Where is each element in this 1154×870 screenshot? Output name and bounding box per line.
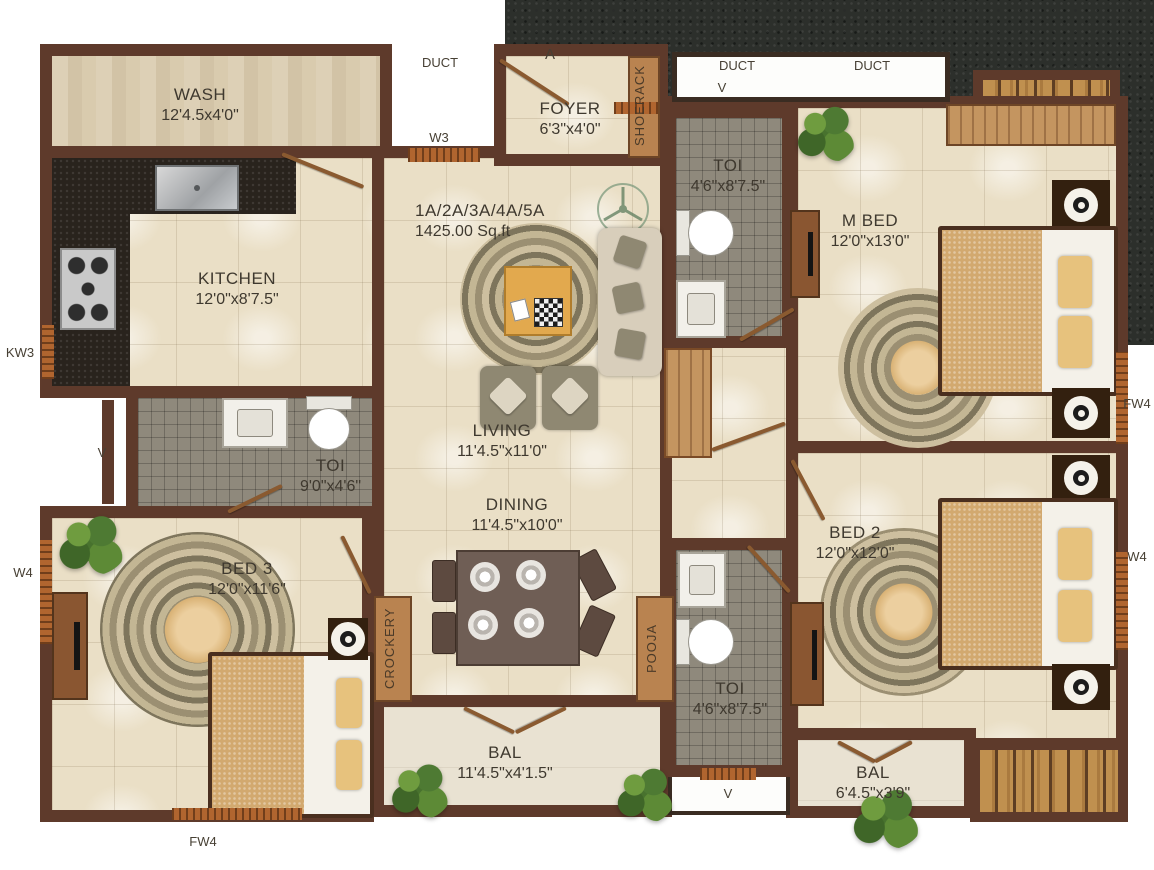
bed3-nightstand	[328, 618, 368, 660]
tv-screen	[812, 630, 817, 680]
bed-blanket	[212, 656, 304, 814]
wc-bowl	[688, 210, 734, 256]
bed-blanket	[942, 502, 1042, 666]
window-vent-bottom	[700, 768, 756, 780]
living-label: LIVING 11'4.5"x11'0"	[422, 420, 582, 463]
toilet-left-washbasin	[222, 398, 288, 448]
lamp-ring	[340, 631, 356, 647]
plate	[470, 562, 500, 592]
bed2-label: BED 2 12'0"x12'0"	[775, 522, 935, 565]
kitchen-sink	[155, 165, 239, 211]
w4-left-marker: W4	[8, 565, 38, 580]
plate	[514, 608, 544, 638]
bed3-label: BED 3 12'0"x11'6"	[167, 558, 327, 601]
kw3-marker: KW3	[0, 345, 40, 360]
dining-chair	[432, 612, 456, 654]
lamp-dot	[1078, 202, 1085, 209]
basin	[687, 293, 714, 325]
mbed-label: M BED 12'0"x13'0"	[790, 210, 950, 253]
sofa-cushion	[612, 234, 647, 269]
wash-label: WASH 12'4.5x4'0"	[120, 84, 280, 127]
duct-top-label-1: DUCT	[707, 58, 767, 73]
lamp-icon	[1064, 188, 1098, 222]
chessboard	[534, 298, 563, 327]
toilet-bottom-wc	[676, 614, 734, 668]
coffee-table	[504, 266, 572, 336]
toilet-top-washbasin	[676, 280, 726, 338]
sink-drain	[194, 185, 200, 191]
mbed-nightstand	[1052, 388, 1110, 438]
shoerack-label: SHOERACK	[632, 62, 647, 150]
basin	[689, 565, 715, 596]
kitchen-label: KITCHEN 12'0"x8'7.5"	[157, 268, 317, 311]
corridor-wardrobe	[664, 348, 712, 458]
dining-chair	[432, 560, 456, 602]
lamp-icon	[1064, 670, 1098, 704]
bed-pillow	[1058, 528, 1092, 580]
duct-top-label-2: DUCT	[842, 58, 902, 73]
plate	[516, 560, 546, 590]
balcony-small-label: BAL 6'4.5"x3'9"	[793, 762, 953, 805]
lamp-icon	[1064, 396, 1098, 430]
dining-table	[456, 550, 580, 666]
lamp-dot	[345, 636, 352, 643]
toilet-top-wc	[676, 206, 732, 258]
floor-plan: WASH 12'4.5x4'0" KITCHEN 12'0"x8'7.5" FO…	[0, 0, 1154, 870]
fw4-right-marker: FW4	[1120, 396, 1154, 411]
wc-bowl	[308, 408, 350, 450]
pooja-label: POOJA	[644, 604, 659, 692]
window-kw3	[42, 325, 54, 379]
basin	[237, 409, 273, 436]
toilet-left-wc	[302, 396, 354, 452]
mbed-nightstand	[1052, 180, 1110, 230]
lamp-dot	[1078, 684, 1085, 691]
lamp-ring	[1073, 197, 1089, 213]
mbed-bed	[938, 226, 1118, 396]
dining-label: DINING 11'4.5"x10'0"	[437, 494, 597, 537]
lamp-ring	[1073, 405, 1089, 421]
window-w4-right	[1116, 552, 1128, 650]
entry-marker-a: A	[538, 46, 562, 63]
toilet-top-label: TOI 4'6"x8'7.5"	[658, 155, 798, 198]
crockery-label: CROCKERY	[382, 600, 397, 696]
sofa-cushion	[611, 281, 644, 314]
w4-right-marker: W4	[1122, 549, 1152, 564]
lamp-ring	[1073, 679, 1089, 695]
fw4-bottom-marker: FW4	[178, 834, 228, 849]
window-fw4-bottom	[172, 808, 302, 820]
toilet-bottom-label: TOI 4'6"x8'7.5"	[660, 678, 800, 721]
bed-pillow	[336, 678, 362, 728]
v-bottom-marker: V	[716, 786, 740, 801]
bed-pillow	[1058, 316, 1092, 368]
duct-left-label: DUCT	[410, 55, 470, 70]
plant	[612, 764, 676, 824]
lamp-dot	[1078, 410, 1085, 417]
bed3-bed	[208, 652, 374, 818]
plant	[52, 512, 128, 576]
bed-pillow	[1058, 590, 1092, 642]
v-left-marker: V	[90, 445, 114, 460]
plant	[792, 102, 858, 164]
sofa-cushion	[614, 328, 646, 360]
window-w3	[408, 148, 480, 162]
wc-bowl	[688, 619, 734, 665]
lamp-icon	[331, 622, 365, 656]
lamp-ring	[1073, 470, 1089, 486]
toilet-left-label: TOI 9'0"x4'6"	[258, 455, 403, 498]
bed2-nightstand	[1052, 664, 1110, 710]
rug-center	[875, 583, 932, 640]
bed-pillow	[1058, 256, 1092, 308]
bed2-nightstand	[1052, 455, 1110, 501]
balcony-main-label: BAL 11'4.5"x4'1.5"	[425, 742, 585, 785]
unit-label: 1A/2A/3A/4A/5A 1425.00 Sq.ft	[415, 200, 565, 243]
tv-screen	[74, 622, 80, 670]
sofa	[598, 228, 662, 376]
mbed-wardrobe	[946, 104, 1116, 146]
bed3-tv-unit	[52, 592, 88, 700]
w3-marker: W3	[414, 130, 464, 145]
foyer-label: FOYER 6'3"x4'0"	[495, 98, 645, 141]
bed2-bed	[938, 498, 1118, 670]
kitchen-stove	[60, 248, 116, 330]
plate	[468, 610, 498, 640]
bed-pillow	[336, 740, 362, 790]
toilet-bottom-washbasin	[678, 552, 726, 608]
chair-cushion	[550, 376, 590, 416]
chair-cushion	[488, 376, 528, 416]
window-w4-left	[40, 540, 52, 644]
lamp-dot	[1078, 475, 1085, 482]
magazine	[510, 298, 530, 321]
v-top-marker: V	[710, 80, 734, 95]
bed-blanket	[942, 230, 1042, 392]
lamp-icon	[1064, 461, 1098, 495]
